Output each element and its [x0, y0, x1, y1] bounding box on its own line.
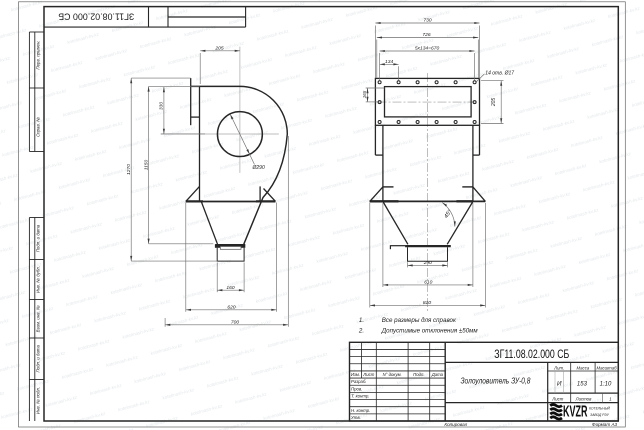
svg-text:Подп. и дата: Подп. и дата — [36, 224, 41, 252]
svg-text:Листов: Листов — [575, 396, 592, 401]
svg-text:Перв. примен.: Перв. примен. — [36, 40, 41, 69]
svg-text:Дата: Дата — [431, 372, 444, 377]
svg-text:205: 205 — [491, 98, 497, 108]
svg-text:Формат А3: Формат А3 — [592, 422, 618, 427]
svg-text:134: 134 — [385, 59, 393, 65]
svg-text:Изм.: Изм. — [351, 372, 360, 377]
svg-text:Лист: Лист — [362, 372, 374, 377]
svg-text:Масса: Масса — [577, 365, 590, 370]
svg-text:Масштаб: Масштаб — [596, 365, 617, 370]
svg-text:KVZR: KVZR — [563, 404, 588, 421]
svg-text:205: 205 — [214, 46, 223, 52]
svg-text:Ø290: Ø290 — [252, 165, 265, 171]
svg-text:Т. контр.: Т. контр. — [351, 394, 370, 399]
svg-text:165: 165 — [362, 90, 367, 98]
svg-text:1270: 1270 — [126, 164, 132, 175]
svg-text:1150: 1150 — [143, 159, 149, 170]
svg-text:2.: 2. — [358, 327, 364, 334]
svg-text:КОТЕЛЬНЫЙ: КОТЕЛЬНЫЙ — [589, 407, 610, 411]
svg-text:Инв. № подл.: Инв. № подл. — [36, 387, 41, 414]
svg-text:Лист: Лист — [551, 396, 563, 401]
svg-text:330: 330 — [158, 102, 164, 110]
svg-text:153: 153 — [577, 382, 588, 388]
svg-text:Справ. №: Справ. № — [36, 117, 41, 137]
svg-text:Подп.: Подп. — [413, 372, 424, 377]
svg-text:160: 160 — [226, 285, 234, 291]
svg-text:726: 726 — [422, 32, 430, 38]
svg-text:Золоуловитель ЗУ-0,8: Золоуловитель ЗУ-0,8 — [461, 377, 531, 386]
svg-text:Все размеры для справок: Все размеры для справок — [382, 317, 457, 324]
svg-text:ЗГ11.08.02.000 СБ: ЗГ11.08.02.000 СБ — [494, 347, 569, 361]
svg-text:Разраб.: Разраб. — [351, 379, 367, 384]
svg-text:730: 730 — [423, 18, 431, 24]
svg-text:Пров.: Пров. — [351, 386, 362, 391]
svg-text:1.: 1. — [359, 317, 364, 324]
svg-text:Подп. и дата: Подп. и дата — [36, 345, 41, 373]
svg-text:700: 700 — [231, 320, 239, 326]
svg-text:Копировал: Копировал — [444, 422, 467, 427]
svg-text:Инв. № дубл.: Инв. № дубл. — [36, 266, 41, 293]
svg-text:ЗАВОД РЭУ: ЗАВОД РЭУ — [590, 413, 610, 417]
svg-text:1:10: 1:10 — [600, 382, 612, 388]
svg-text:14 отв. Ø17: 14 отв. Ø17 — [485, 70, 514, 76]
svg-text:610: 610 — [424, 280, 432, 286]
svg-text:5х134=670: 5х134=670 — [415, 46, 440, 52]
svg-text:620: 620 — [227, 305, 235, 311]
svg-text:Утв.: Утв. — [351, 415, 361, 420]
svg-text:ЗГ11.08.02.000 СБ: ЗГ11.08.02.000 СБ — [58, 10, 134, 21]
svg-text:Допустимые отклонения ±50мм: Допустимые отклонения ±50мм — [381, 327, 479, 334]
svg-text:Н. контр.: Н. контр. — [351, 408, 370, 413]
svg-text:290: 290 — [423, 260, 432, 266]
svg-text:Взам. инв. №: Взам. инв. № — [36, 305, 41, 332]
svg-text:Лит.: Лит. — [553, 365, 564, 370]
svg-text:810: 810 — [423, 300, 431, 306]
svg-text:N° докум.: N° докум. — [383, 372, 402, 377]
svg-text:И: И — [557, 381, 562, 388]
